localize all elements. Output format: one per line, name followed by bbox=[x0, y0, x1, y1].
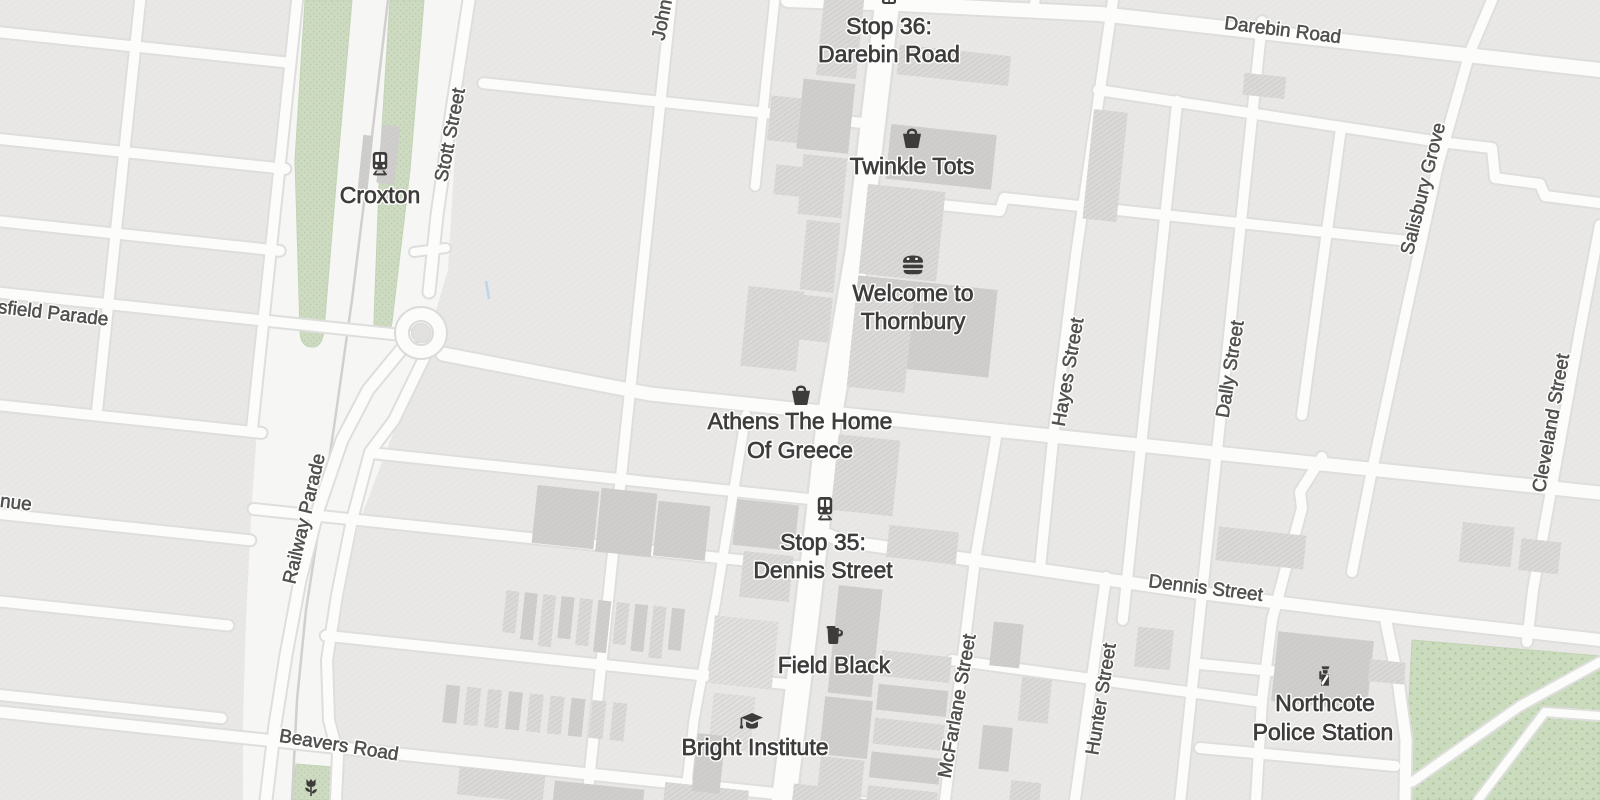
svg-text:Athens The Home: Athens The Home bbox=[708, 408, 893, 434]
svg-text:Croxton: Croxton bbox=[340, 182, 421, 208]
svg-text:Dennis Street: Dennis Street bbox=[753, 557, 893, 583]
svg-text:Stop 35:: Stop 35: bbox=[780, 529, 866, 555]
svg-text:enue: enue bbox=[0, 490, 33, 516]
svg-text:Thornbury: Thornbury bbox=[861, 308, 966, 334]
svg-text:Welcome to: Welcome to bbox=[852, 280, 973, 306]
svg-text:Northcote: Northcote bbox=[1275, 690, 1375, 716]
svg-text:Police Station: Police Station bbox=[1253, 719, 1394, 745]
svg-text:Of Greece: Of Greece bbox=[747, 437, 853, 463]
svg-text:Stop 36:: Stop 36: bbox=[846, 13, 932, 39]
svg-text:Darebin Road: Darebin Road bbox=[818, 41, 960, 67]
svg-text:Bright Institute: Bright Institute bbox=[681, 734, 828, 760]
svg-text:Field Black: Field Black bbox=[778, 652, 891, 678]
svg-text:Twinkle Tots: Twinkle Tots bbox=[850, 153, 975, 179]
